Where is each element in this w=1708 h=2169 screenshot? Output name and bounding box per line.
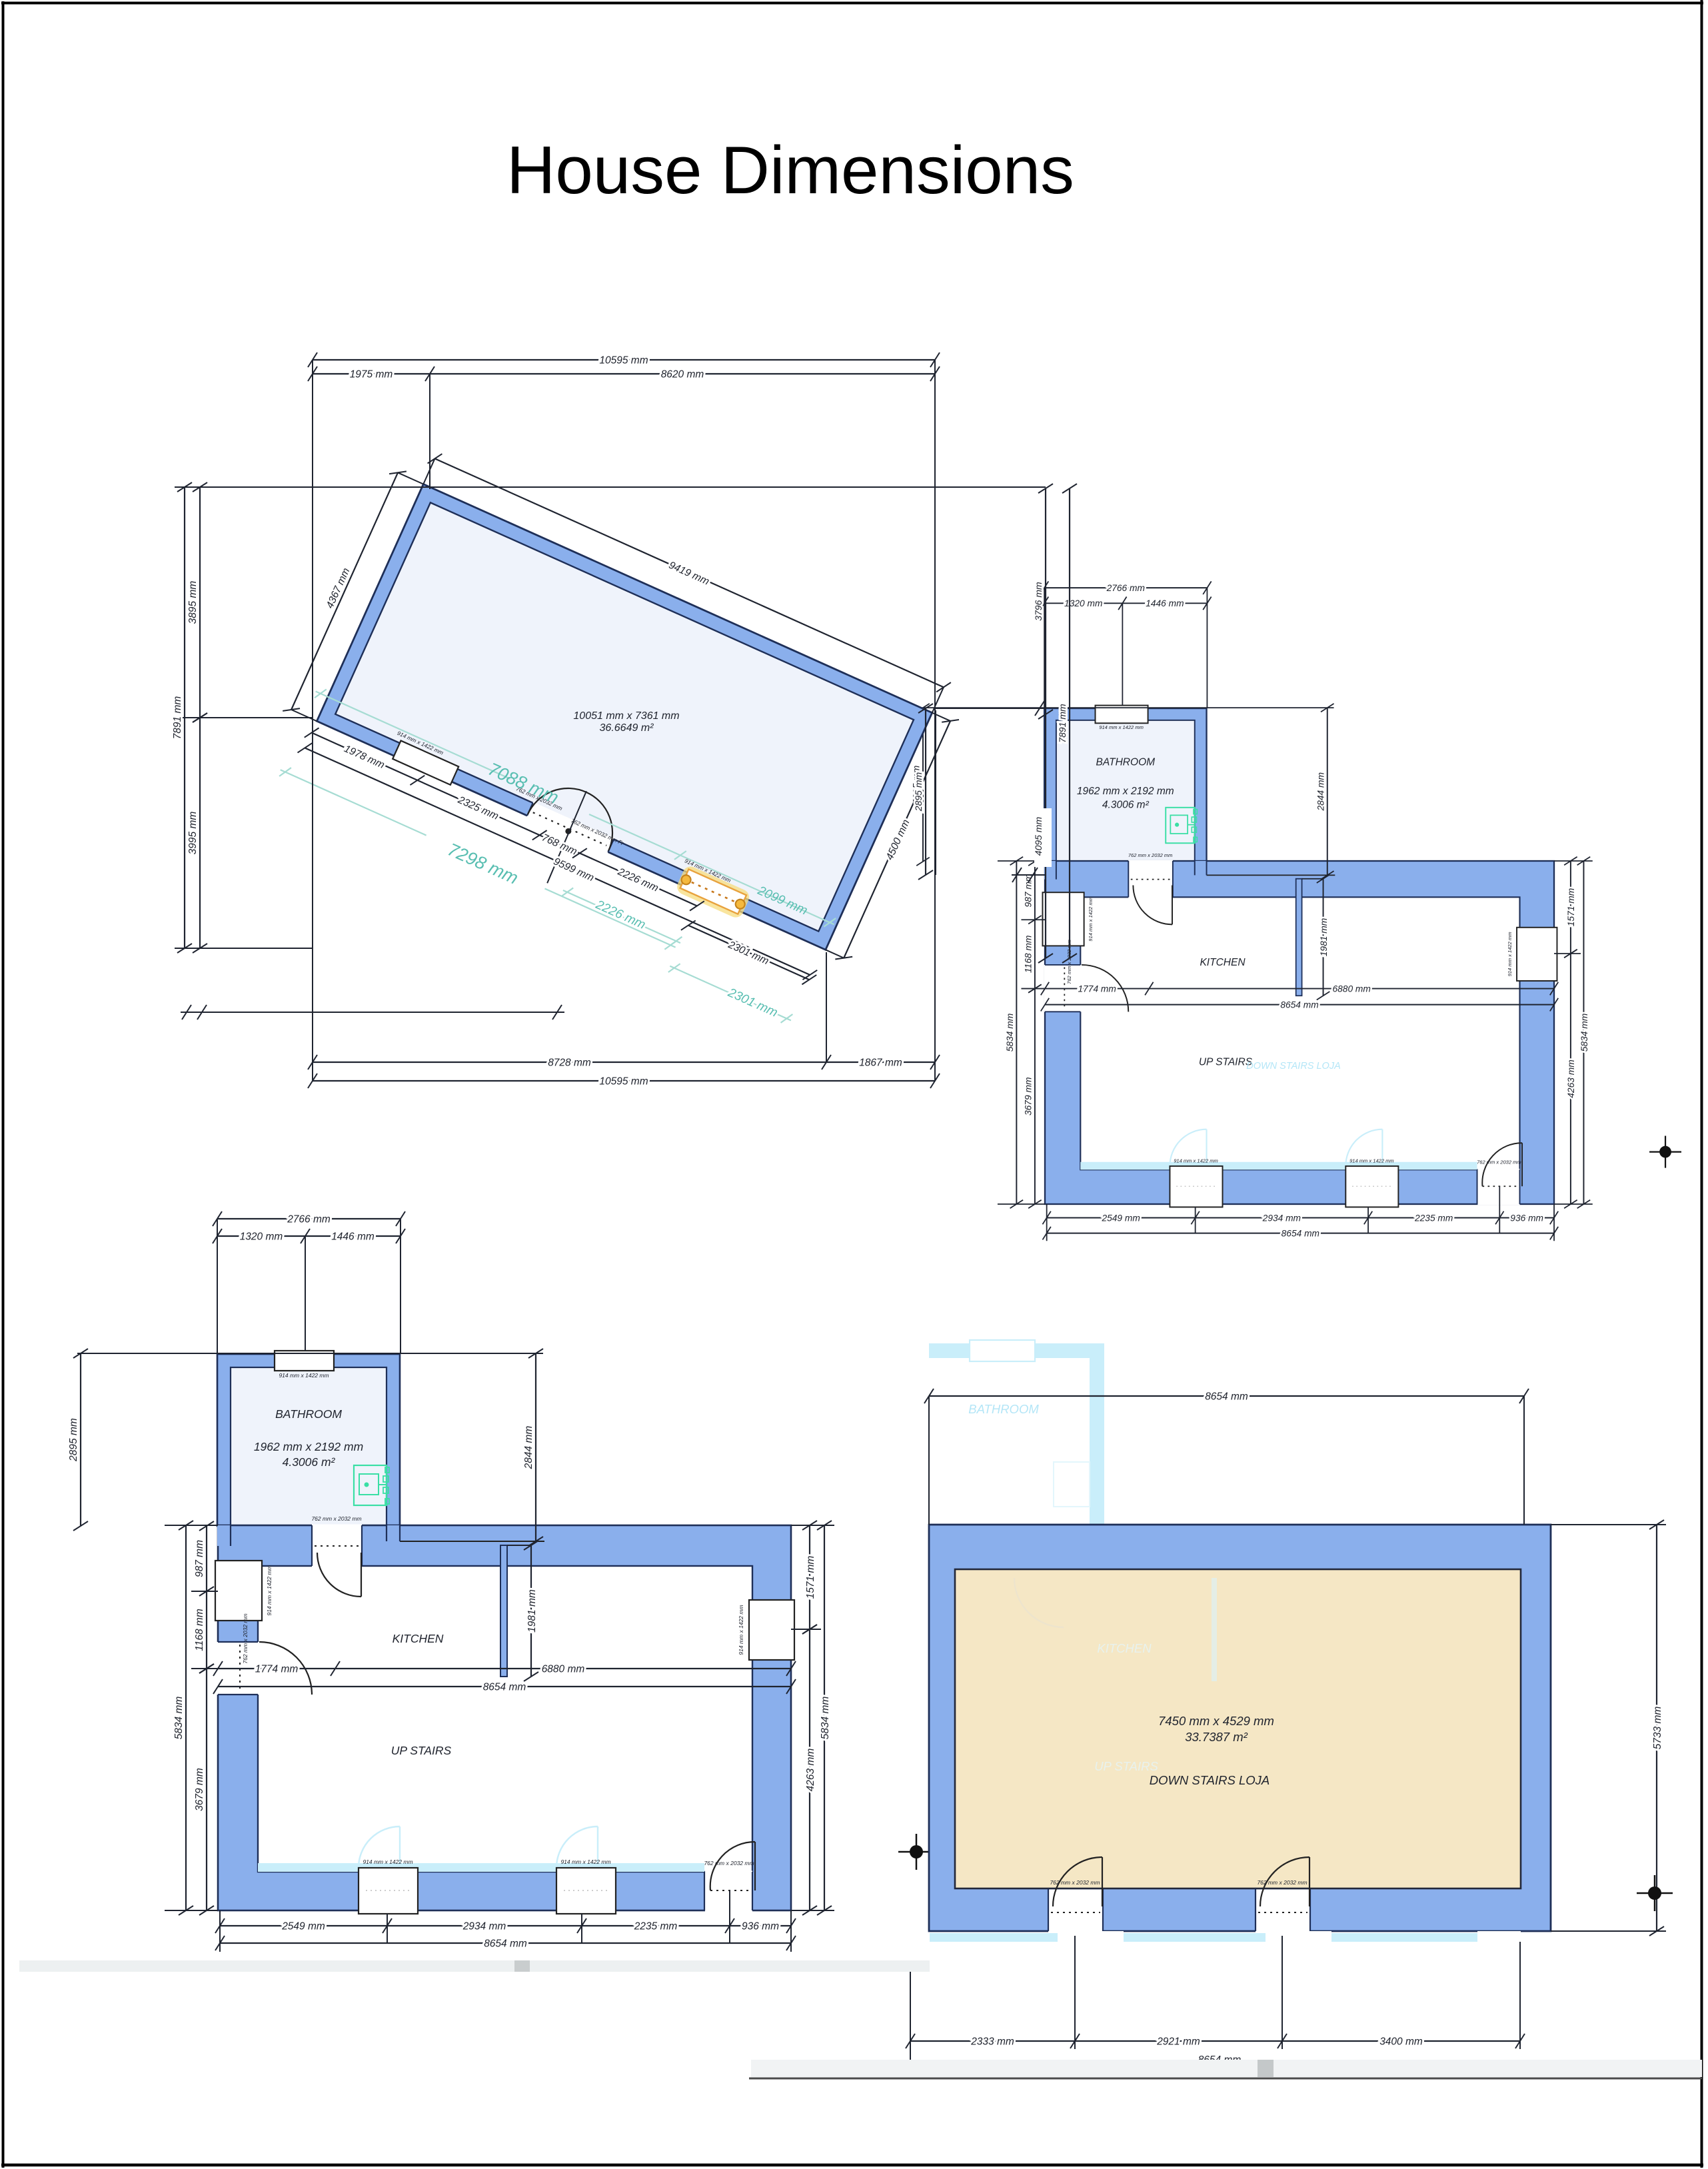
svg-text:10595 mm: 10595 mm [599, 355, 648, 366]
svg-text:2333 mm: 2333 mm [970, 2036, 1014, 2048]
svg-text:1975 mm: 1975 mm [350, 369, 393, 380]
svg-text:8728 mm: 8728 mm [548, 1058, 591, 1069]
svg-text:33.7387 m²: 33.7387 m² [1185, 1730, 1248, 1744]
svg-text:7891 mm: 7891 mm [1057, 704, 1068, 743]
svg-text:House Dimensions: House Dimensions [506, 132, 1074, 208]
svg-text:1867 mm: 1867 mm [859, 1058, 902, 1069]
svg-text:8620 mm: 8620 mm [661, 369, 704, 380]
svg-text:3400 mm: 3400 mm [1379, 2036, 1423, 2048]
svg-text:10595 mm: 10595 mm [599, 1076, 648, 1087]
svg-text:762 mm x 2032 mm: 762 mm x 2032 mm [1257, 1879, 1307, 1886]
svg-text:KITCHEN: KITCHEN [1097, 1641, 1152, 1655]
svg-text:2921 mm: 2921 mm [1156, 2036, 1200, 2048]
svg-text:3796 mm: 3796 mm [1033, 582, 1044, 621]
svg-text:DOWN STAIRS LOJA: DOWN STAIRS LOJA [1150, 1773, 1270, 1787]
svg-text:2895 mm: 2895 mm [913, 772, 924, 812]
svg-text:UP STAIRS: UP STAIRS [1094, 1759, 1158, 1773]
svg-text:BATHROOM: BATHROOM [968, 1402, 1039, 1416]
svg-text:3995 mm: 3995 mm [187, 812, 199, 855]
svg-text:7450 mm x 4529 mm: 7450 mm x 4529 mm [1158, 1714, 1274, 1728]
svg-text:4095 mm: 4095 mm [1033, 816, 1044, 856]
svg-text:10051 mm x 7361 mm: 10051 mm x 7361 mm [573, 710, 679, 722]
svg-text:DOWN STAIRS LOJA: DOWN STAIRS LOJA [1246, 1061, 1341, 1072]
svg-text:7891 mm: 7891 mm [172, 696, 183, 740]
svg-text:5733 mm: 5733 mm [1652, 1707, 1663, 1750]
svg-text:8654 mm: 8654 mm [1205, 1391, 1248, 1403]
svg-text:762 mm x 2032 mm: 762 mm x 2032 mm [1050, 1879, 1100, 1886]
svg-text:36.6649 m²: 36.6649 m² [600, 722, 654, 734]
svg-text:3895 mm: 3895 mm [187, 581, 199, 624]
